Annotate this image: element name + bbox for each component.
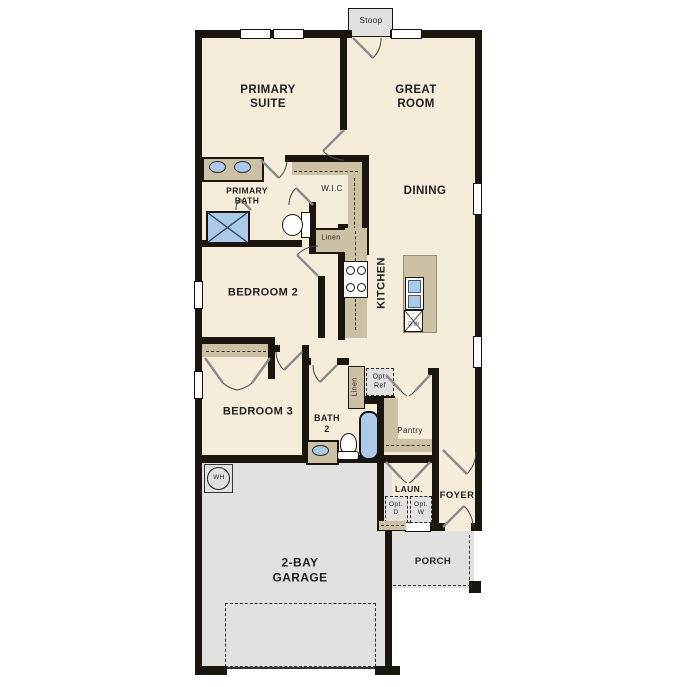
bedroom3-label: BEDROOM 3 [223, 405, 293, 418]
pantry-shelf-left [384, 398, 398, 440]
window-suite-2 [273, 29, 304, 39]
wall-garage-bottom-left [195, 666, 227, 675]
porch-dash-bottom [393, 585, 481, 586]
floor-plan: Stoop [0, 0, 687, 687]
wall-bath2-top-a [302, 358, 311, 365]
opt-dryer-label: Opt. D [389, 501, 403, 517]
great-room-label: GREAT ROOM [395, 83, 436, 111]
water-heater-label: WH [213, 474, 225, 482]
linen-bath2-label: Linen [352, 377, 361, 396]
linen-wic-label: Linen [321, 235, 340, 244]
wall-foyer-bottom-left [438, 523, 445, 531]
wall-foyer-bottom-right [471, 523, 482, 531]
laundry-strip-dash [381, 525, 404, 526]
wall-garage-right [385, 530, 392, 670]
porch-post [469, 581, 481, 593]
garage-door-swing [225, 603, 376, 667]
primary-bath-label: PRIMARY BATH [226, 186, 268, 207]
dishwasher-label: DW [408, 321, 420, 329]
window-laundry [405, 522, 431, 532]
bath2-sink [312, 445, 329, 456]
wic-shelf-top [292, 162, 362, 175]
wall-suite-divider [340, 37, 347, 130]
dining-label: DINING [404, 184, 447, 198]
window-bedroom2 [194, 281, 203, 309]
bedroom2-label: BEDROOM 2 [228, 286, 298, 299]
window-greatroom [391, 29, 422, 39]
wall-right [475, 30, 482, 531]
wall-bed2-bottom [195, 337, 275, 344]
opt-washer-label: Opt. W [414, 501, 428, 517]
island-sink-basin-1 [408, 280, 421, 293]
window-kitchen-side [473, 336, 482, 368]
burner-3 [346, 283, 355, 292]
burner-4 [357, 283, 366, 292]
island-sink-basin-2 [408, 295, 421, 308]
wall-bed2-right [318, 276, 325, 338]
wall-laundry-left [377, 461, 384, 526]
wall-bath2-top-b [337, 358, 349, 365]
porch-label: PORCH [415, 556, 451, 568]
opt-ref-label: Opt. Ref [373, 373, 388, 390]
toilet-primary-bowl [282, 214, 303, 236]
stoop-label: Stoop [360, 16, 383, 26]
wall-wic-top [285, 155, 369, 162]
pantry-shelf-dash [386, 445, 430, 446]
window-suite-1 [240, 29, 271, 39]
burner-2 [357, 266, 366, 275]
wall-laundry-right [432, 440, 439, 526]
counter-dash-top [355, 231, 356, 261]
garage-door-line [227, 667, 375, 669]
pantry-label: Pantry [397, 426, 423, 436]
garage-label: 2-BAY GARAGE [272, 555, 327, 584]
burner-1 [346, 266, 355, 275]
toilet-bath2-base [337, 451, 359, 460]
wall-bed3-top [268, 345, 280, 352]
vanity-sink-right [234, 161, 251, 173]
counter-dash-bottom [355, 299, 356, 330]
porch-dash-right [469, 535, 470, 585]
bed3-closet-dash [206, 351, 266, 352]
bath2-label: BATH 2 [314, 413, 340, 435]
primary-suite-label: PRIMARY SUITE [240, 83, 295, 111]
kitchen-label: KITCHEN [375, 257, 388, 309]
laundry-label: LAUN. [395, 484, 423, 494]
wall-left [195, 30, 202, 675]
wic-label: W.I.C [321, 184, 343, 194]
shower [206, 211, 250, 244]
foyer-label: FOYER [440, 490, 475, 502]
bathtub [359, 411, 379, 460]
wic-shelf-dash [294, 171, 358, 172]
vanity-sink-left [209, 161, 226, 173]
window-bedroom3 [194, 371, 203, 399]
window-dining [473, 183, 482, 215]
wall-closet-right [268, 337, 275, 379]
